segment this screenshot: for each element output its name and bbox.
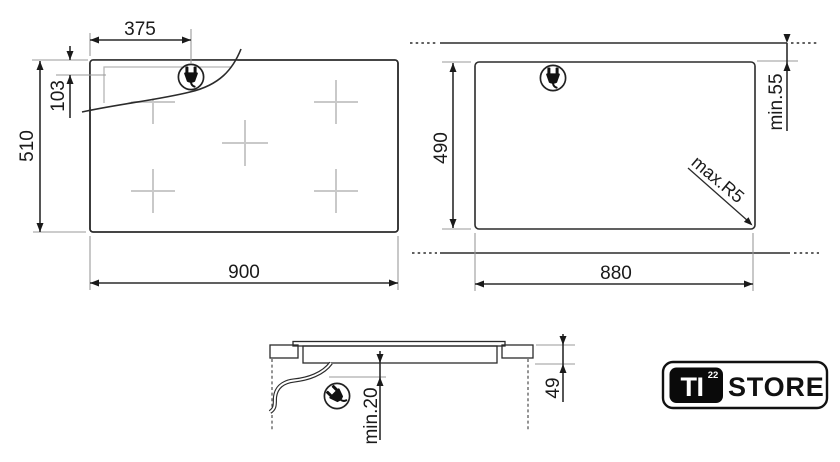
arrowhead-up xyxy=(560,364,567,373)
arrowhead-left xyxy=(90,280,99,287)
dimension-375: 375 xyxy=(90,19,191,63)
ti-store-logo: TI 22 STORE xyxy=(663,362,827,408)
arrowhead-down xyxy=(560,336,567,345)
arrowhead-down xyxy=(67,51,74,60)
dim-label-cutout-depth: 490 xyxy=(431,132,452,164)
burner-cross xyxy=(131,169,175,213)
plug-icon xyxy=(178,64,203,89)
dim-label-width: 900 xyxy=(228,262,260,283)
arrowhead-up xyxy=(377,377,384,386)
burner-center-marks xyxy=(131,80,358,213)
arrowhead-down xyxy=(450,219,457,228)
arrowhead-up xyxy=(37,61,44,70)
burner-cross-center xyxy=(222,120,268,166)
arrowhead-down xyxy=(377,354,384,363)
dim-label-plug-offset-y: 103 xyxy=(48,80,69,112)
hob-body-section xyxy=(303,346,497,363)
dim-label-cutout-width: 880 xyxy=(600,263,632,284)
logo-brand-superscript: 22 xyxy=(708,370,719,381)
dim-label-corner-radius: max.R5 xyxy=(688,152,748,207)
dimension-min55: min.55 xyxy=(757,34,798,131)
arrowhead-left xyxy=(90,37,99,44)
technical-drawing-canvas: 375 103 510 900 xyxy=(0,0,840,462)
arrowhead-up xyxy=(784,62,791,71)
hob-glass-top-section xyxy=(293,342,505,347)
worktop-section-left xyxy=(270,345,298,358)
logo-brand-text: TI xyxy=(681,372,704,402)
cutout-outline xyxy=(475,62,755,229)
burner-cross xyxy=(314,80,358,124)
side-section-drawing: min.20 49 xyxy=(270,334,575,445)
worktop-section-right xyxy=(502,345,533,358)
dim-label-plug-offset-x: 375 xyxy=(124,19,156,40)
dimension-900: 900 xyxy=(90,236,398,290)
arrowhead-right xyxy=(389,280,398,287)
dimension-max-r5: max.R5 xyxy=(688,152,753,226)
dimension-49: 49 xyxy=(535,334,575,402)
arrowhead-right xyxy=(744,281,753,288)
plug-icon xyxy=(319,378,355,414)
installation-drawing-sheet: 375 103 510 900 xyxy=(0,0,840,462)
arrowhead-up xyxy=(450,63,457,72)
dimension-490: 490 xyxy=(431,62,471,229)
arrowhead-left xyxy=(475,281,484,288)
cutout-view-drawing: 490 880 min.55 max.R5 xyxy=(410,34,819,291)
dim-label-rear-clearance: min.55 xyxy=(766,73,787,130)
power-cable xyxy=(270,363,331,412)
dimension-880: 880 xyxy=(475,233,753,291)
arrowhead-down xyxy=(784,34,791,43)
arrowhead-right xyxy=(182,37,191,44)
dim-label-under-clearance: min.20 xyxy=(361,387,382,444)
top-view-drawing: 375 103 510 900 xyxy=(17,19,398,290)
logo-store-text: STORE xyxy=(728,372,825,402)
burner-cross xyxy=(314,169,358,213)
arrowhead-down xyxy=(37,223,44,232)
plug-icon xyxy=(540,65,565,90)
dim-label-depth: 510 xyxy=(17,130,38,162)
dim-label-recess-depth: 49 xyxy=(543,377,564,398)
